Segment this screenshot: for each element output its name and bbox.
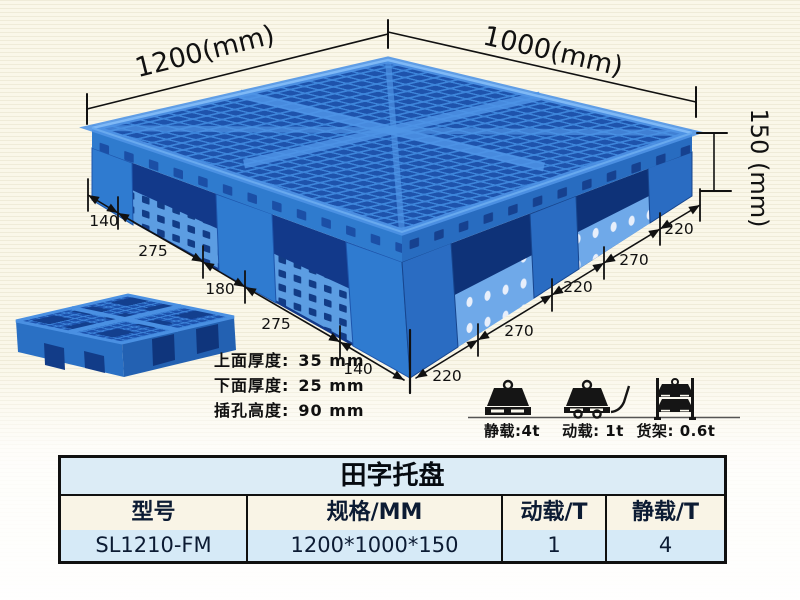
right-dim-3: 270 [619, 251, 649, 269]
table-cell-size: 1200*1000*150 [246, 530, 501, 561]
left-dim-0: 140 [89, 212, 119, 230]
table-header-model: 型号 [61, 496, 246, 530]
spec-value: 35 mm [298, 351, 364, 370]
table-header-row: 型号 规格/MM 动载/T 静载/T [61, 496, 724, 530]
table-data-row: SL1210-FM 1200*1000*150 1 4 [61, 530, 724, 561]
table-cell-model: SL1210-FM [61, 530, 246, 561]
left-dim-1: 275 [138, 242, 168, 260]
left-dim-2: 180 [205, 280, 235, 298]
spec-row-top-thickness: 上面厚度:35 mm [214, 352, 365, 377]
table-header-dynamic-load: 动载/T [501, 496, 605, 530]
left-dim-3: 275 [261, 315, 291, 333]
spec-label: 上面厚度: [214, 351, 289, 370]
spec-row-bottom-thickness: 下面厚度:25 mm [214, 377, 365, 402]
table-cell-static-load: 4 [605, 530, 724, 561]
dim-width-label: 1000(mm) [480, 21, 626, 83]
static-load-label: 静载:4t [484, 420, 540, 441]
right-dim-4: 220 [664, 220, 694, 238]
rack-load-icon [654, 378, 696, 420]
table-title: 田字托盘 [61, 458, 724, 496]
spec-label: 下面厚度: [214, 376, 289, 395]
thumbnail-pallet-image [16, 295, 236, 377]
capacity-icons [468, 378, 740, 420]
dynamic-load-label: 动载: 1t [562, 420, 624, 441]
spec-label: 插孔高度: [214, 401, 289, 420]
dim-length-label: 1200(mm) [132, 19, 278, 84]
thickness-specs: 上面厚度:35 mm 下面厚度:25 mm 插孔高度:90 mm [214, 352, 365, 427]
spec-value: 25 mm [298, 376, 364, 395]
static-load-icon [485, 381, 531, 415]
right-dim-2: 220 [563, 278, 593, 296]
table-cell-dynamic-load: 1 [501, 530, 605, 561]
product-spec-table: 田字托盘 型号 规格/MM 动载/T 静载/T SL1210-FM 1200*1… [58, 455, 727, 564]
rack-load-label: 货架: 0.6t [637, 420, 716, 441]
table-header-size: 规格/MM [246, 496, 501, 530]
dim-height-label: 150 (mm) [745, 109, 773, 228]
spec-value: 90 mm [298, 401, 364, 420]
spec-row-fork-height: 插孔高度:90 mm [214, 402, 365, 427]
right-dim-0: 220 [432, 367, 462, 385]
right-dim-1: 270 [504, 322, 534, 340]
table-header-static-load: 静载/T [605, 496, 724, 530]
dynamic-load-icon [564, 381, 629, 418]
